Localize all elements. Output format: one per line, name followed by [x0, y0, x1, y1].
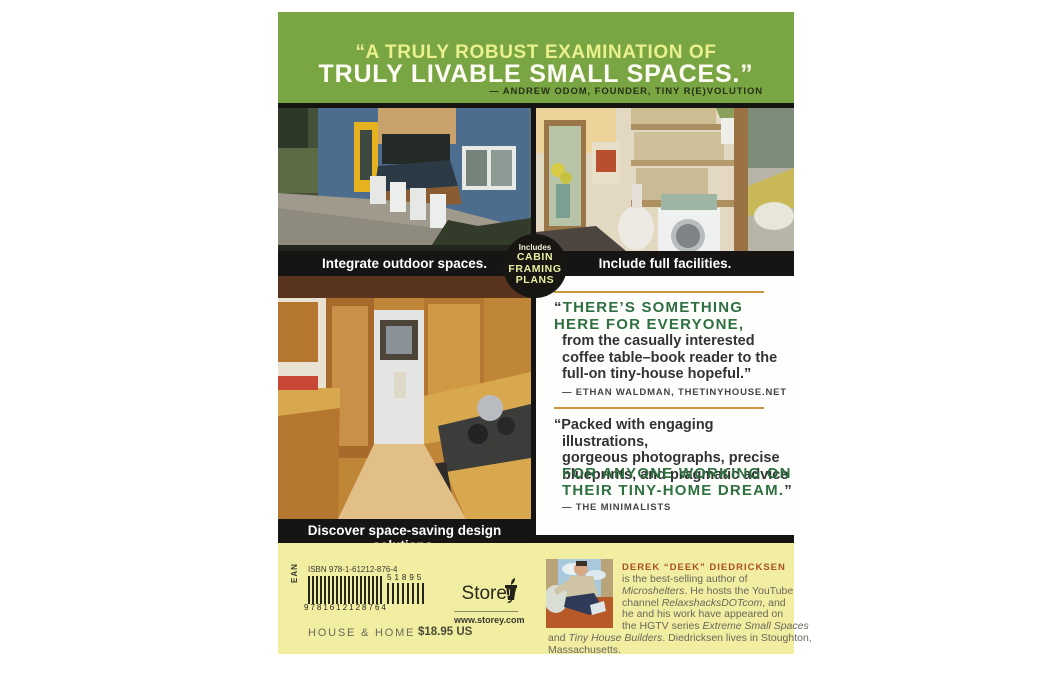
svg-text:J: J [507, 588, 511, 598]
